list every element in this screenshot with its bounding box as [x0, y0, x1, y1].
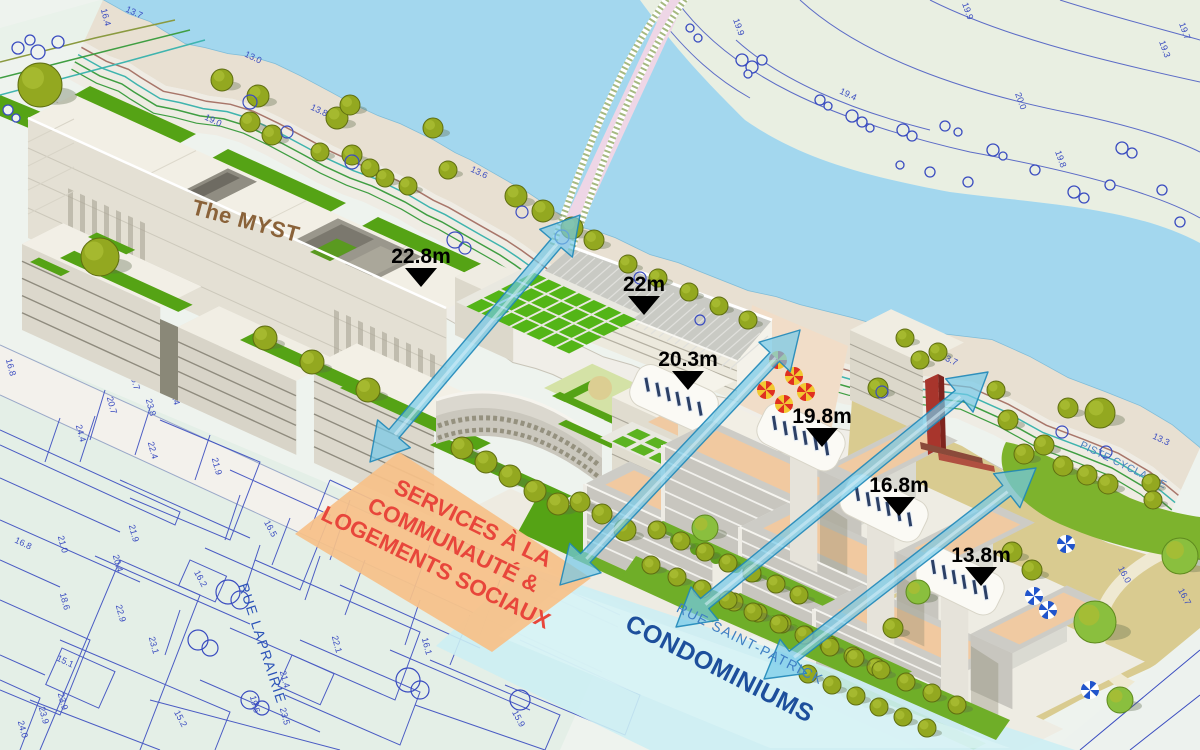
svg-text:19.8m: 19.8m: [792, 405, 852, 428]
svg-text:22m: 22m: [623, 273, 665, 296]
svg-text:22.8m: 22.8m: [391, 245, 451, 268]
svg-text:16.8m: 16.8m: [869, 474, 929, 497]
svg-text:20.3m: 20.3m: [658, 348, 718, 371]
svg-text:13.8m: 13.8m: [951, 544, 1011, 567]
